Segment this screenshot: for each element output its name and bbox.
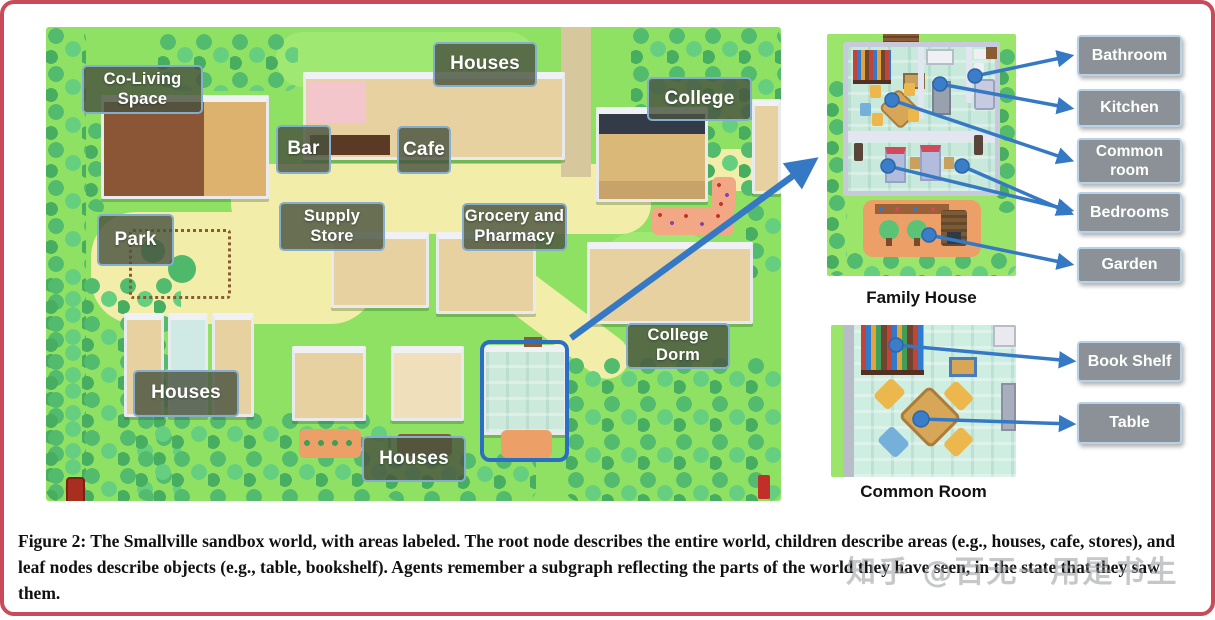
bed <box>885 147 906 183</box>
co-living-rooms <box>104 102 204 196</box>
cabinet <box>1001 383 1016 431</box>
dirt-road <box>561 27 591 177</box>
red-car <box>66 477 85 501</box>
building-college <box>596 107 708 202</box>
chair <box>904 83 915 96</box>
map-label-houses-left: Houses <box>133 370 239 417</box>
building-college-dorm <box>587 242 753 324</box>
label-bathroom: Bathroom <box>1077 35 1182 76</box>
building-edge <box>752 99 781 194</box>
tree-trunk <box>886 238 892 246</box>
garden-plot <box>299 429 361 458</box>
shed-opening <box>947 232 961 244</box>
flower-patch <box>652 207 734 235</box>
map-label-cafe: Cafe <box>397 126 451 174</box>
map-label-park: Park <box>97 214 174 266</box>
label-garden: Garden <box>1077 247 1182 283</box>
label-kitchen: Kitchen <box>1077 89 1182 127</box>
grass-strip <box>831 325 843 477</box>
chair <box>870 85 881 98</box>
family-house-highlight-box <box>480 340 569 462</box>
bedroom-wall <box>848 131 995 142</box>
pink-room <box>308 81 366 123</box>
toilet <box>974 63 984 74</box>
garden-shed <box>941 210 967 246</box>
family-house <box>843 42 1000 196</box>
map-label-college-dorm: College Dorm <box>626 323 730 369</box>
map-label-co-living-space: Co-Living Space <box>82 65 203 114</box>
tree-trunk <box>914 238 920 246</box>
map-label-grocery-pharmacy: Grocery and Pharmacy <box>462 203 567 251</box>
figure-frame: Co-Living Space Houses College Bar Cafe … <box>0 0 1215 616</box>
family-house-caption: Family House <box>827 288 1016 308</box>
interior-wall <box>918 47 924 119</box>
building-house-bottom-2 <box>391 346 464 421</box>
chair <box>908 109 919 122</box>
person <box>974 135 983 155</box>
college-porch <box>599 181 705 199</box>
red-marker <box>758 475 770 499</box>
label-book-shelf: Book Shelf <box>1077 341 1182 382</box>
fridge <box>932 81 951 115</box>
bed <box>920 145 941 181</box>
co-living-common-area <box>204 102 266 196</box>
person <box>854 143 863 161</box>
map-label-college: College <box>647 77 752 121</box>
flower-patch <box>712 177 736 211</box>
kitchen-counter <box>926 49 954 65</box>
garden <box>863 200 981 257</box>
family-house-inset <box>827 34 1016 276</box>
garden-tree <box>907 220 927 240</box>
chair <box>872 113 883 126</box>
map-label-supply-store: Supply Store <box>279 202 385 251</box>
interior-wall <box>966 47 972 103</box>
watermark: 知乎 @百无一用是书生 <box>846 547 1215 591</box>
common-room-caption: Common Room <box>831 482 1016 502</box>
flower-pots <box>875 204 949 214</box>
sink <box>993 325 1016 347</box>
map-label-houses-bottom: Houses <box>362 436 466 482</box>
map-label-houses-top: Houses <box>433 42 537 87</box>
blue-chair <box>860 103 871 116</box>
label-table: Table <box>1077 402 1182 444</box>
tree-cluster <box>566 357 781 501</box>
bathtub <box>974 79 995 110</box>
bookshelf <box>861 325 924 375</box>
bedside-chair <box>944 157 954 169</box>
building-house-bottom-1 <box>292 346 366 421</box>
garden-tree <box>879 220 899 240</box>
map-label-bar: Bar <box>276 125 331 174</box>
bedside-chair <box>910 157 920 169</box>
label-bedrooms: Bedrooms <box>1077 192 1182 233</box>
common-room-inset <box>831 325 1016 477</box>
bathroom-sink <box>974 49 986 59</box>
smallville-map: Co-Living Space Houses College Bar Cafe … <box>46 27 781 501</box>
label-common-room: Common room <box>1077 138 1182 184</box>
bookshelf <box>853 50 891 84</box>
wall-strip <box>843 325 854 477</box>
bathroom-cabinet <box>986 47 997 59</box>
wall-frame <box>949 357 977 377</box>
